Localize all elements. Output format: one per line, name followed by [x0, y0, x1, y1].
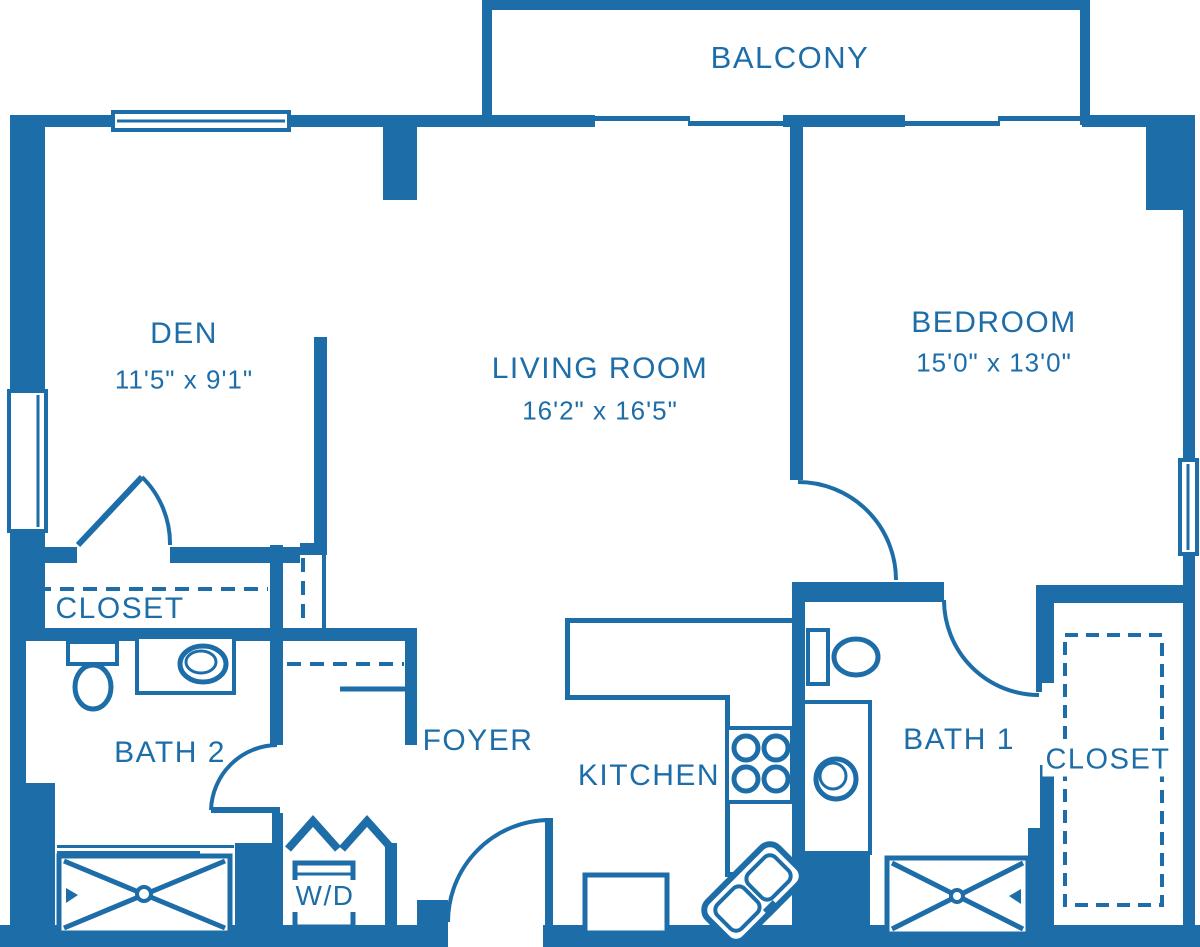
label-bath1: BATH 1: [903, 723, 1015, 757]
wall-wd-right: [385, 843, 397, 925]
slider-panel-1: [595, 116, 690, 121]
bathtub-icon-bath1: [887, 858, 1028, 934]
toilet-icon-bath2: [68, 642, 117, 709]
wall-living-bedroom-divider: [790, 127, 803, 480]
den-left-window-icon: [9, 391, 46, 531]
balcony-wall-left: [482, 0, 492, 125]
label-den: DEN: [150, 317, 218, 351]
label-den-dims: 11'5" x 9'1": [115, 365, 253, 396]
balcony-wall-right: [1080, 0, 1090, 125]
slider-panel-3: [905, 121, 1000, 126]
wall-bath1-plumbing-block: [803, 853, 870, 925]
slider-panel-4: [998, 116, 1082, 121]
wall-bath1-top: [805, 582, 944, 602]
walls: [0, 0, 1200, 947]
label-kitchen: KITCHEN: [578, 759, 720, 793]
wall-pillar-living: [383, 115, 417, 200]
label-bedroom-dims: 15'0" x 13'0": [916, 348, 1072, 379]
slider-panel-2: [688, 121, 783, 126]
wall-divider-cap: [300, 543, 327, 555]
label-foyer: FOYER: [423, 724, 534, 758]
floor-plan-drawing: [0, 0, 1200, 947]
wall-den-living-divider: [314, 337, 327, 555]
wall-under-balcony-left: [492, 115, 595, 127]
bedroom-door-icon: [798, 482, 896, 580]
den-top-window-icon: [113, 112, 289, 130]
label-bedroom: BEDROOM: [911, 306, 1077, 340]
kitchen-counter-left-edge: [565, 618, 570, 700]
bedroom-right-window-icon: [1180, 460, 1197, 554]
wall-right-upper: [1183, 127, 1195, 462]
wd-bifold-door-icon: [288, 821, 338, 849]
wall-left-upper: [10, 127, 45, 392]
label-balcony: BALCONY: [711, 40, 870, 76]
wall-wd-left-block: [235, 843, 283, 925]
tub-alcove-line-1: [57, 845, 234, 848]
den-door-icon: [78, 477, 170, 545]
bathtub-icon-bath2: [59, 856, 230, 933]
floor-plan: BALCONY DEN 11'5" x 9'1" LIVING ROOM 16'…: [0, 0, 1200, 947]
kitchen-counter-top-edge: [565, 618, 792, 623]
sink-icon-bath2: [137, 637, 234, 693]
wall-bath2-foyer: [270, 545, 283, 745]
wall-den-bottom-left: [10, 547, 77, 563]
wall-bath2-foyer-stub: [272, 813, 283, 845]
wall-top-left: [10, 115, 115, 127]
toilet-icon-bath1: [808, 630, 878, 684]
label-living-room: LIVING ROOM: [492, 352, 709, 386]
label-bath2: BATH 2: [114, 736, 226, 770]
label-closet-right: CLOSET: [1042, 744, 1173, 777]
wall-bath1-closet-block: [1028, 828, 1054, 934]
stove-icon: [727, 728, 792, 802]
kitchen-appliance-icon: [585, 875, 667, 933]
wall-left-mid: [10, 530, 45, 640]
wall-closet-right-top: [1036, 585, 1183, 603]
balcony-wall-top: [482, 0, 1090, 10]
wall-left-block: [10, 783, 55, 933]
entry-door-jamb: [417, 900, 448, 925]
entry-door-icon: [448, 818, 549, 925]
wall-coat-closet-right: [405, 641, 417, 745]
wall-left-lower: [10, 640, 26, 785]
wall-right-lower: [1183, 552, 1195, 933]
bath1-door-icon: [944, 600, 1039, 695]
wall-bath1-closet-a: [1040, 603, 1054, 683]
label-closet-left: CLOSET: [55, 592, 184, 626]
label-living-room-dims: 16'2" x 16'5": [522, 396, 678, 427]
wall-linen-closet-thin: [322, 555, 326, 628]
kitchen-counter-arm-edge: [565, 695, 730, 700]
wd-bifold-door-icon-2: [342, 821, 392, 849]
sink-icon-bath1: [803, 702, 870, 853]
label-washer-dryer: W/D: [293, 880, 358, 912]
wall-under-balcony-mid: [783, 115, 905, 127]
fixtures: [59, 630, 1028, 947]
